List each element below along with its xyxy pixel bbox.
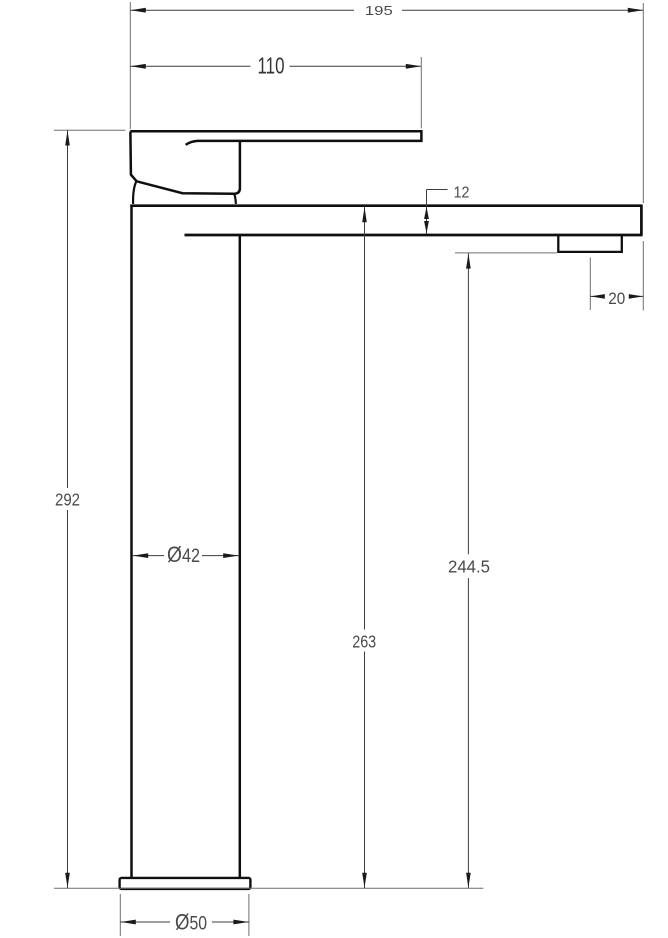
svg-text:20: 20	[608, 289, 625, 308]
svg-text:Ø50: Ø50	[175, 910, 207, 935]
svg-text:Ø42: Ø42	[167, 542, 200, 567]
svg-text:263: 263	[352, 631, 376, 651]
svg-text:12: 12	[454, 184, 470, 201]
svg-text:244.5: 244.5	[448, 557, 490, 577]
svg-text:292: 292	[55, 490, 80, 510]
svg-text:110: 110	[258, 52, 285, 78]
svg-text:195: 195	[365, 3, 393, 18]
